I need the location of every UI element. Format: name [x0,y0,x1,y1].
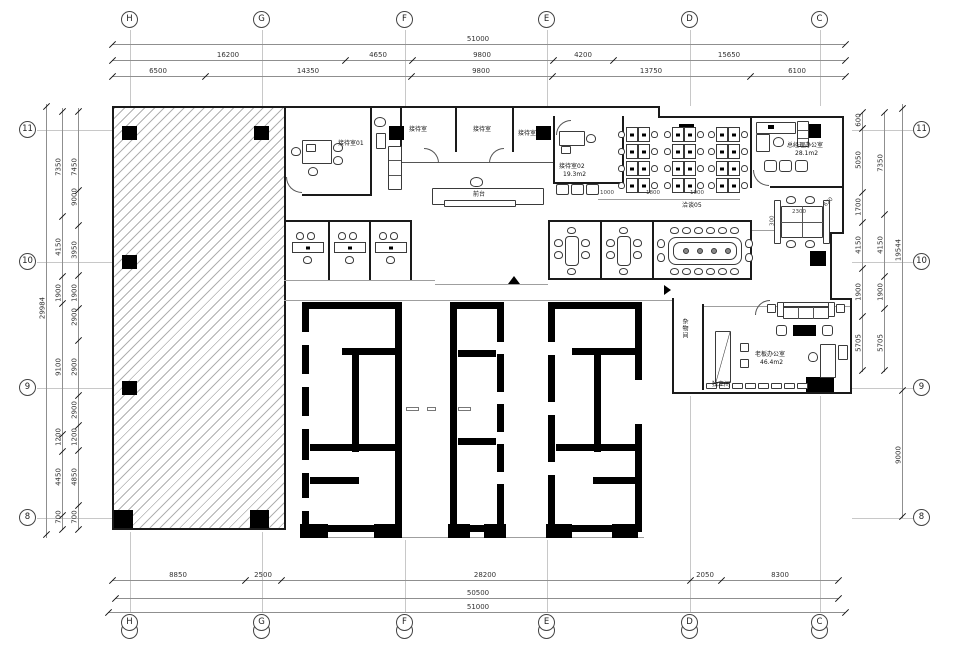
wall [830,298,852,300]
door-arc [489,148,504,163]
chair [338,232,346,240]
wall-boss-section [672,298,674,394]
chair [805,240,815,248]
core-opening [548,402,555,415]
chair [697,182,704,189]
corridor-line [435,284,548,285]
room-label-boss-office-area: 46.4m2 [760,360,783,366]
chair [291,147,301,156]
chair [606,239,615,247]
core-partition [572,348,635,355]
dim-line [115,598,838,599]
desk [292,242,324,253]
chair [349,232,357,240]
cabinet-shelf [389,160,401,161]
desk [716,144,728,159]
dim-left-inner-7: 1200 [72,428,79,446]
desk [375,242,407,253]
core-partition [342,348,398,355]
grid-line-h [852,518,913,519]
table [559,131,585,146]
column [810,251,826,266]
wall-gm-office [750,116,752,188]
dim-top-inner-1: 14350 [297,68,319,75]
meeting-table [617,236,631,266]
chair [586,134,596,143]
chair [786,240,796,248]
dim-bottom-inner-0: 8850 [169,572,187,579]
dim-left-outer-2: 1900 [56,284,63,302]
dim-top-mid-0: 16200 [217,52,239,59]
desk [626,127,638,142]
desk [716,161,728,176]
dim-top-mid-2: 9800 [473,52,491,59]
meeting-table [565,236,579,266]
entry-arrow-icon [508,276,520,284]
dim-right-overall-lower: 9000 [896,446,903,464]
room-label-gm-office: 总经理办公室 [787,143,823,149]
table-socket [711,248,717,254]
radiator-segment [745,383,756,389]
room-label-boss-office: 老板办公室 [755,352,785,358]
chair [773,137,784,147]
wall [112,106,660,108]
room-label-storage: 杂物间 [681,318,687,339]
core-opening [548,342,555,355]
grid-line-h [37,130,112,131]
grid-line-v [405,30,406,106]
desk [820,344,836,378]
grid-bubble-right-9: 9 [913,379,930,396]
room-label-reception01: 接待室01 [338,141,364,147]
dim-bottom-inner-4: 8300 [771,572,789,579]
desk-return [756,134,770,152]
desk [684,144,696,159]
chair [730,268,739,275]
dim-top-mid-3: 4200 [574,52,592,59]
chair [619,227,628,234]
dim-top-mid-4: 15650 [718,52,740,59]
dim-bottom-inner-1: 2500 [254,572,272,579]
desk [626,178,638,193]
chair [682,268,691,275]
grid-bubble-left-9: 9 [19,379,36,396]
chair [730,227,739,234]
chair [708,182,715,189]
chair [345,256,354,264]
mirror [376,133,386,149]
door-arc [286,177,302,193]
chair [618,182,625,189]
door-leaf [458,407,471,411]
room-label-reception02-area: 19.3m2 [563,172,586,178]
dim-right-inner-1: 4150 [878,236,885,254]
dim-tick [842,57,849,64]
chair [554,251,563,259]
wall [284,106,286,530]
dim-tick [842,609,849,616]
dim-left-inner-3: 1900 [72,284,79,302]
chair [618,131,625,138]
waiting-seat [586,184,599,195]
grid-bubble-top-c: C [811,11,828,28]
core-foot [484,524,506,538]
desk [626,144,638,159]
sofa-divider [813,307,814,319]
dim-right-outer-3: 4150 [856,236,863,254]
dim-line [46,104,47,538]
column [122,381,137,395]
chair [694,268,703,275]
wall [842,116,844,234]
core-opening [302,460,309,473]
room-label-meeting05: 洽谈05 [682,203,702,209]
wall [850,298,852,394]
chair [745,239,753,248]
sofa-divider [798,307,799,319]
dim-top-inner-3: 13750 [640,68,662,75]
room-label-reception-b: 接待室 [473,127,491,133]
dim-left-outer-4: 1200 [56,428,63,446]
grid-bubble-top-h: H [121,11,138,28]
wall-small-offices [328,220,330,281]
room-label-gm-office-area: 28.1m2 [795,151,818,157]
chair [664,148,671,155]
desk [684,161,696,176]
dim-right-outer-2: 1700 [856,198,863,216]
core-partition [556,444,642,451]
grid-bubble-right-8: 8 [913,509,930,526]
wall-small-offices [410,220,412,281]
entry-arrow-icon [664,285,671,295]
dim-tick [859,367,866,374]
dim-top-mid-1: 4650 [369,52,387,59]
column [122,126,137,140]
grid-bubble-top-f: F [396,11,413,28]
wall-reception01-right [370,106,372,196]
guest-chair [795,160,808,172]
grid-bubble-top-d: D [681,11,698,28]
grid-bubble-bottom-c: C [811,614,828,631]
wall-meeting-divider [600,220,602,280]
grid-line-v [547,540,548,612]
core-partition [310,444,402,451]
core-partition [310,477,359,484]
waiting-seat [571,184,584,195]
chair [618,148,625,155]
core-opening [302,332,309,345]
corridor-line [284,280,435,281]
chair [303,256,312,264]
chair [664,131,671,138]
cabinet-shelf [798,138,808,139]
room-label-front-desk: 前台 [473,192,485,198]
dim-tick [835,577,842,584]
coffee-table [793,325,816,336]
floor-plan-canvas: 51000 16200 4650 9800 4200 15650 6500 14… [0,0,955,648]
chair [567,227,576,234]
dim-top-inner-0: 6500 [149,68,167,75]
wall-meeting-box [750,220,752,280]
chair [390,232,398,240]
dim-tick [842,41,849,48]
grid-bubble-top-e: E [538,11,555,28]
dim-left-inner-4: 2900 [72,308,79,326]
radiator-segment [771,383,782,389]
chair [567,268,576,275]
front-desk-inner [444,200,516,207]
core-foot [300,524,328,538]
wall-meeting-box [548,220,752,222]
grid-bubble-bottom-g: G [253,614,270,631]
core-opening [302,374,309,387]
column [536,126,551,140]
chair [664,182,671,189]
dim-tick [835,595,842,602]
chair [308,167,318,176]
chair [706,268,715,275]
desk [684,127,696,142]
desk [334,242,366,253]
column [250,510,269,528]
dim-left-overall: 29984 [40,297,47,319]
grid-bubble-left-8: 8 [19,509,36,526]
desk [728,178,740,193]
dim-left-inner-2: 3950 [72,241,79,259]
core-opening [302,416,309,429]
chair [296,232,304,240]
core-foot [374,524,402,538]
grid-line-v [820,30,821,106]
grid-bubble-bottom-f: F [396,614,413,631]
dim-open-office-2: 1000 [690,191,704,197]
desk [638,161,650,176]
sofa-arm [828,302,835,317]
chair [333,156,343,165]
dim-top-inner-2: 9800 [472,68,490,75]
core-opening [497,392,504,404]
dim-tick [75,526,82,533]
chair [554,239,563,247]
desk [672,144,684,159]
chair [741,131,748,138]
dim-line [112,580,838,581]
core-foot [448,524,470,538]
cabinet-shelf [389,175,401,176]
wall-gm-office [770,186,844,188]
dim-right-inner-0: 7350 [878,154,885,172]
grid-bubble-bottom-h: H [121,614,138,631]
chair [633,251,642,259]
waiting-seat [556,184,569,195]
guest-chair [764,160,777,172]
wall-storage [702,304,704,390]
core-opening [302,498,309,511]
armchair [822,325,833,336]
wall-meeting-divider [652,220,654,280]
wall-meeting-box [548,278,752,280]
dim-open-office-0: 1000 [600,191,614,197]
chair [808,352,818,362]
sofa-arm [777,302,784,317]
grid-line-v [405,540,406,612]
tall-cabinet [715,331,731,383]
dim-right-outer-4: 1900 [856,283,863,301]
dim-tick [842,73,849,80]
chair [470,177,483,187]
dim-line [112,44,845,45]
core-opening [497,472,504,484]
desk [716,178,728,193]
grid-line-v [130,532,131,612]
chair [651,148,658,155]
dim-right-outer-1: 5050 [856,151,863,169]
side-table [767,304,776,313]
desk [672,161,684,176]
radiator-segment [732,383,743,389]
chair [741,182,748,189]
core-foot [546,524,572,538]
dim-bottom-mid: 50500 [467,590,489,597]
armchair [776,325,787,336]
desk [716,127,728,142]
chair [805,196,815,204]
wall-small-offices [369,220,371,281]
desk-pedestal [306,144,316,152]
grid-bubble-left-11: 11 [19,121,36,138]
room-label-reception-a: 接待室 [409,127,427,133]
wall [512,106,514,152]
wall-reception01-bottom [302,194,372,196]
table-socket [697,248,703,254]
desk [728,144,740,159]
door-leaf [427,407,436,411]
dim-left-inner-6: 2900 [72,401,79,419]
dim-bottom-inner-2: 28200 [474,572,496,579]
chair [581,251,590,259]
wall [112,528,286,530]
stool [740,343,749,352]
chair [697,165,704,172]
grid-bubble-right-10: 10 [913,253,930,270]
chair [657,239,665,248]
chair [670,268,679,275]
wall [672,392,852,394]
grid-line-v [262,30,263,106]
chair [379,232,387,240]
core-middle [450,302,504,532]
dim-right-outer-0: 600 [856,113,863,126]
desk-pedestal [561,146,571,154]
chair [651,165,658,172]
desk [626,161,638,176]
open-office-line [598,199,740,200]
wall-chunk [806,377,834,392]
core-opening [497,342,504,354]
grid-line-h [37,262,112,263]
unfitted-hatch-area [114,108,284,528]
chair [706,227,715,234]
dim-tick [59,526,66,533]
stool [740,359,749,368]
chair [697,131,704,138]
chair [618,165,625,172]
core-opening [548,462,555,475]
chair [581,239,590,247]
chair [786,196,796,204]
dim-left-outer-1: 4150 [56,238,63,256]
chair [718,227,727,234]
corridor-line [284,300,673,301]
wall [830,232,832,300]
chair [741,148,748,155]
grid-bubble-right-11: 11 [913,121,930,138]
chair [606,251,615,259]
dim-right-overall-upper: 19544 [896,239,903,261]
dim-bottom-overall: 51000 [467,604,489,611]
chair [651,182,658,189]
guest-chair [779,160,792,172]
grid-line-v [690,30,691,106]
desk [728,161,740,176]
door-leaf [406,407,419,411]
grid-bubble-bottom-d: D [681,614,698,631]
dim-left-outer-0: 7350 [56,158,63,176]
chair [651,131,658,138]
desk [756,122,796,134]
chair [682,227,691,234]
cabinet-shelf [798,130,808,131]
door-arc [424,148,439,163]
column [389,126,404,140]
dim-left-inner-0: 7450 [72,158,79,176]
table-socket [725,248,731,254]
dim-left-outer-6: 700 [56,510,63,523]
corridor-line [300,537,644,538]
grid-bubble-left-10: 10 [19,253,36,270]
chair [307,232,315,240]
wall [830,232,844,234]
dim-left-outer-3: 9100 [56,358,63,376]
room-label-reception-c: 接待室 [518,131,536,137]
room-label-reception02: 接待室02 [559,164,585,170]
dim-line [112,60,845,61]
dim-workstation-1: 300 [771,216,777,227]
wall-reception02 [553,116,555,184]
chair [718,268,727,275]
wall [112,106,114,530]
radiator-segment [797,383,808,389]
dim-right-inner-3: 5705 [878,334,885,352]
core-partition [458,350,496,357]
radiator-segment [784,383,795,389]
dim-right-inner-2: 1900 [878,283,885,301]
wall-small-offices [284,220,412,222]
column [114,510,133,528]
dim-tick [881,367,888,374]
chair [386,256,395,264]
desk [728,127,740,142]
chair [741,165,748,172]
side-unit [838,345,848,360]
chair [708,165,715,172]
chair [745,253,753,262]
dim-bottom-inner-3: 2050 [696,572,714,579]
grid-bubble-bottom-e: E [538,614,555,631]
dim-top-overall: 51000 [467,36,489,43]
grid-line-v [130,30,131,106]
chair [670,227,679,234]
